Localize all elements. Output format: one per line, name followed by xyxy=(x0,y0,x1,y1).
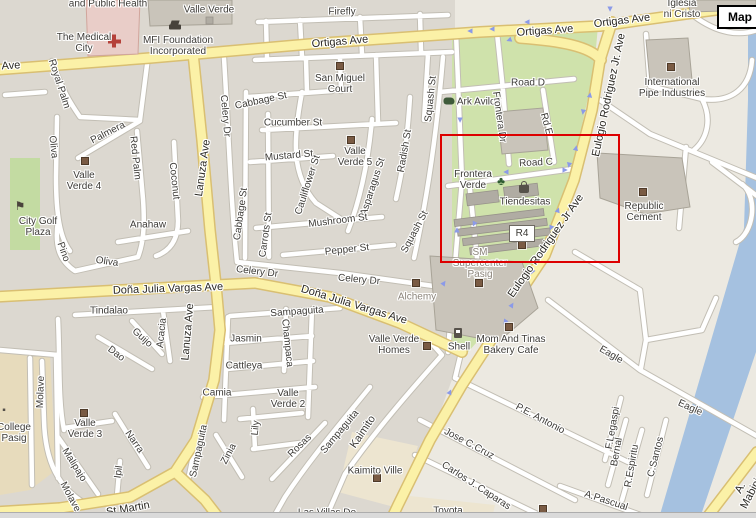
city-golf-plaza-label: City Golf Plaza xyxy=(19,216,57,238)
poi-marker xyxy=(412,279,420,287)
ark-avilon-animal-icon xyxy=(444,98,455,105)
molave-label: Molave xyxy=(35,376,47,409)
hospital-cross-icon xyxy=(112,35,116,48)
republic-cement-label: Republic Cement xyxy=(625,201,664,223)
firefly-label: Firefly xyxy=(328,6,355,17)
golf-flag-icon: ⚑ xyxy=(15,200,26,212)
traffic-arrow-icon: ▲ xyxy=(466,27,475,36)
traffic-arrow-icon: ▲ xyxy=(606,5,615,14)
oliva-label: Oliva xyxy=(46,135,60,159)
jasmin-label: Jasmin xyxy=(230,333,262,344)
highlight-rectangle xyxy=(440,134,620,263)
traffic-arrow-icon: ▲ xyxy=(585,90,595,100)
small-building xyxy=(206,17,213,24)
mfi-foundation-incorporated-label: MFI Foundation Incorporated xyxy=(143,35,213,57)
cattleya-label: Cattleya xyxy=(226,360,263,371)
poi-marker xyxy=(639,188,647,196)
international-pipe-industries-label: International Pipe Industries xyxy=(639,77,705,99)
poi-marker xyxy=(667,63,675,71)
traffic-arrow-icon: ▲ xyxy=(488,25,497,34)
lily-label: Lily xyxy=(250,420,263,436)
graduation-cap-icon xyxy=(169,25,181,30)
shell-label: Shell xyxy=(448,341,470,352)
international-pipe-building xyxy=(646,38,692,82)
anahaw-label: Anahaw xyxy=(130,219,166,230)
valle-verde-label: Valle Verde xyxy=(184,4,234,15)
map-canvas[interactable]: and Public HealthValle VerdeThe Medical … xyxy=(0,0,756,518)
college-pasig-label: College Pasig xyxy=(0,422,31,444)
and-public-health-label: and Public Health xyxy=(69,0,147,10)
traffic-arrow-icon: ▲ xyxy=(578,107,588,117)
cucumber-st-label: Cucumber St xyxy=(264,117,322,128)
poi-marker xyxy=(81,157,89,165)
poi-marker xyxy=(336,62,344,70)
iglesia-ni-cristo-label: Iglesia ni Cristo xyxy=(664,0,701,20)
san-miguel-court-label: San Miguel Court xyxy=(315,73,365,95)
poi-marker xyxy=(347,136,355,144)
ave-label: Ave xyxy=(1,59,20,72)
map-type-button-label: Map xyxy=(728,10,752,24)
viewport-bottom-edge xyxy=(0,512,756,518)
camia-label: Camia xyxy=(203,387,232,398)
poi-marker xyxy=(423,342,431,350)
alchemy-label: Alchemy xyxy=(398,291,436,302)
ipil-label: Ipil xyxy=(113,465,126,479)
valle-verde-homes-label: Valle Verde Homes xyxy=(369,334,419,356)
poi-marker xyxy=(80,409,88,417)
the-medical-city-label: The Medical City xyxy=(57,32,111,54)
gas-pump-icon xyxy=(454,328,462,338)
poi-marker xyxy=(505,323,513,331)
valle-verde-4-label: Valle Verde 4 xyxy=(67,170,101,192)
college-icon: ▪ xyxy=(2,406,6,416)
valle-verde-3-label: Valle Verde 3 xyxy=(68,418,102,440)
tindalao-label: Tindalao xyxy=(90,305,128,316)
kaimito-ville-label: Kaimito Ville xyxy=(348,465,403,476)
mom-and-tinas-bakery-cafe-label: Mom And Tinas Bakery Cafe xyxy=(477,334,546,356)
valle-verde-5-label: Valle Verde 5 xyxy=(338,146,372,168)
map-type-button[interactable]: Map xyxy=(717,5,756,29)
valle-verde-2-label: Valle Verde 2 xyxy=(271,388,305,410)
traffic-arrow-icon: ▲ xyxy=(456,116,465,125)
road-d-label: Road D xyxy=(511,77,545,88)
